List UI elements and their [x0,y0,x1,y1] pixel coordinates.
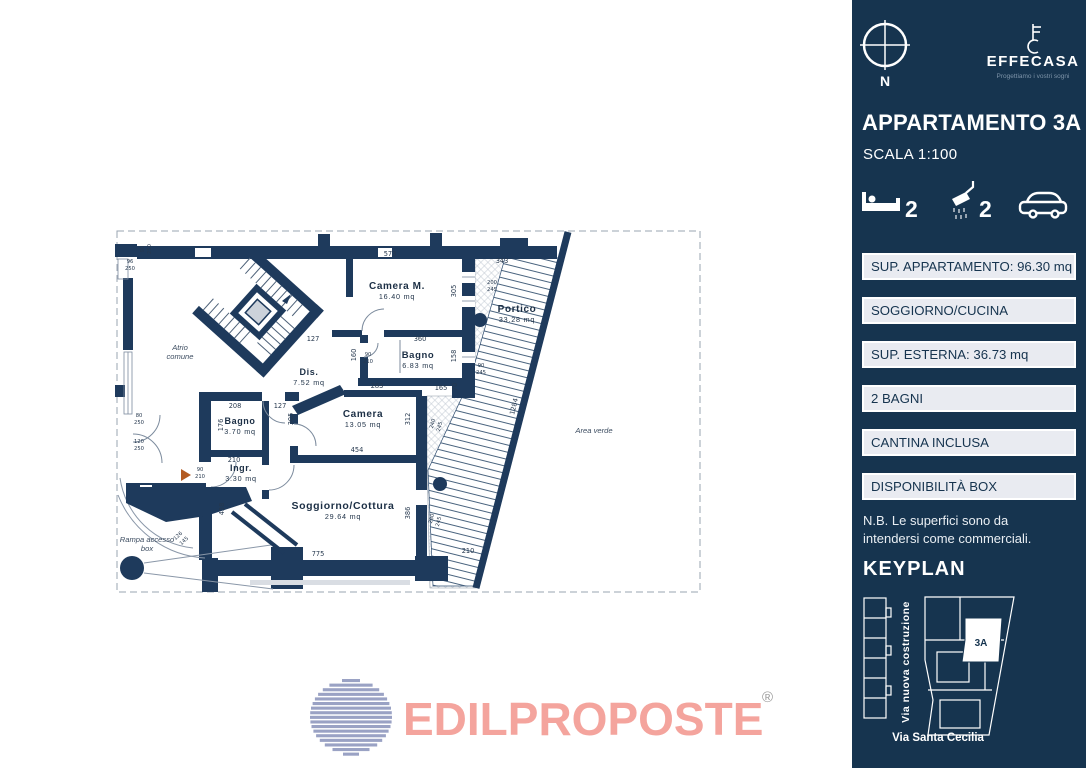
street-label-bottom: Via Santa Cecilia [892,732,984,744]
effecasa-key-icon [1028,24,1041,53]
stair-direction-arrow [282,294,291,304]
north-label: N [880,73,890,89]
info-box-sup-appartamento: SUP. APPARTAMENTO: 96.30 mq [862,253,1076,280]
room-area: 3.30 mq [225,474,257,483]
room-area: 29.64 mq [325,512,361,521]
dimension: 96 [127,259,134,265]
dimension: 343 [496,257,509,265]
staircase [192,246,324,377]
info-box-bagni: 2 BAGNI [862,385,1076,412]
dimension: 90 [365,352,372,358]
dimension: 158 [450,350,458,363]
room-name: Ingr. [230,463,252,473]
area-label: comune [166,352,193,361]
sidebar: N EFFECASA Progettiamo i vostri sogni 2 [852,0,1086,768]
dimension: 245 [476,370,486,376]
shower-icon [952,181,973,219]
car-icon [1020,193,1066,217]
brand-name: EFFECASA [987,53,1080,70]
street-label-vertical: Via nuova costruzione [900,601,912,723]
dimension: 386 [404,507,412,520]
dimension: 305 [450,285,458,298]
note-line-1: N.B. Le superfici sono da [863,512,1031,530]
area-label: box [141,544,154,553]
brand-tagline: Progettiamo i vostri sogni [997,73,1070,80]
room-area: 16.40 mq [379,292,415,301]
dimension: 120 [134,439,144,445]
edilproposte-logo: EDILPROPOSTE ® [310,679,773,756]
room-name: Dis. [300,367,319,377]
entrance-marker-icon [181,469,191,481]
info-box-box: DISPONIBILITÀ BOX [862,473,1076,500]
room-name: Camera M. [369,281,425,292]
apartment-title: APPARTAMENTO 3A [862,110,1081,136]
room-name: Bagno [225,416,256,426]
dimension: 250 [134,420,144,426]
area-label: Atrio [171,343,188,352]
dimension: 160 [350,349,358,362]
room-name: Portico [498,304,537,315]
scale-label: SCALA 1:100 [863,146,957,163]
dimension: 90 [140,246,146,253]
dimension: 208 [229,402,242,410]
logo-text: EDILPROPOSTE [403,693,763,745]
keyplan-unit-label: 3A [975,638,988,649]
info-box-cantina: CANTINA INCLUSA [862,429,1076,456]
dimension: 250 [134,446,144,452]
room-name: Bagno [402,350,435,361]
room-name: Camera [343,409,383,420]
dimension: 127 [307,335,320,343]
dimension: 200 [487,280,497,286]
keyplan-title: KEYPLAN [863,558,966,581]
dimension: 454 [351,446,364,454]
dimension: 775 [312,550,325,558]
sill [250,580,410,585]
dimension: 165 [435,384,448,392]
dimension: 90 [478,363,485,369]
dimension: 250 [125,266,135,272]
info-box-soggiorno-cucina: SOGGIORNO/CUCINA [862,297,1076,324]
room-area: 33.28 mq [499,315,535,324]
dimension: 438 [218,503,226,516]
room-area: 6.83 mq [402,361,434,370]
portico-area [427,258,561,588]
dimension: 250 [147,244,153,254]
bed-count: 2 [905,196,918,222]
note: N.B. Le superfici sono da intendersi com… [863,512,1031,548]
registered-mark: ® [762,689,773,706]
room-area: 3.70 mq [224,427,256,436]
info-box-sup-esterna: SUP. ESTERNA: 36.73 mq [862,341,1076,368]
shower-count: 2 [979,196,992,222]
note-line-2: intendersi come commerciali. [863,530,1031,548]
compass-icon [860,20,910,70]
dimension: 210 [462,547,475,555]
dimension: 312 [404,413,412,426]
dimension: 245 [487,287,497,293]
dimension: 210 [195,474,205,480]
dimension: 573 [384,250,397,258]
room-area: 13.05 mq [345,420,381,429]
area-label: Area verde [574,426,612,435]
room-area: 7.52 mq [293,378,325,387]
dimension: 80 [136,413,143,419]
page: Camera M.16.40 mqBagno6.83 mqDis.7.52 mq… [0,0,1086,768]
dimension: 210 [363,359,373,365]
area-label: Rampa accesso [120,535,174,544]
dimension: 90 [197,467,204,473]
dimension: 176 [217,419,225,432]
elevator-icon [230,284,286,340]
bed-icon [862,192,900,211]
dimension: 305 [287,413,295,426]
dimension: 360 [414,335,427,343]
dimension: 283 [371,382,384,390]
dimension: 210 [228,456,241,464]
room-name: Soggiorno/Cottura [292,500,395,512]
globe-icon [310,679,392,756]
dimension: 127 [274,402,287,410]
dimension: 70 [451,383,459,391]
